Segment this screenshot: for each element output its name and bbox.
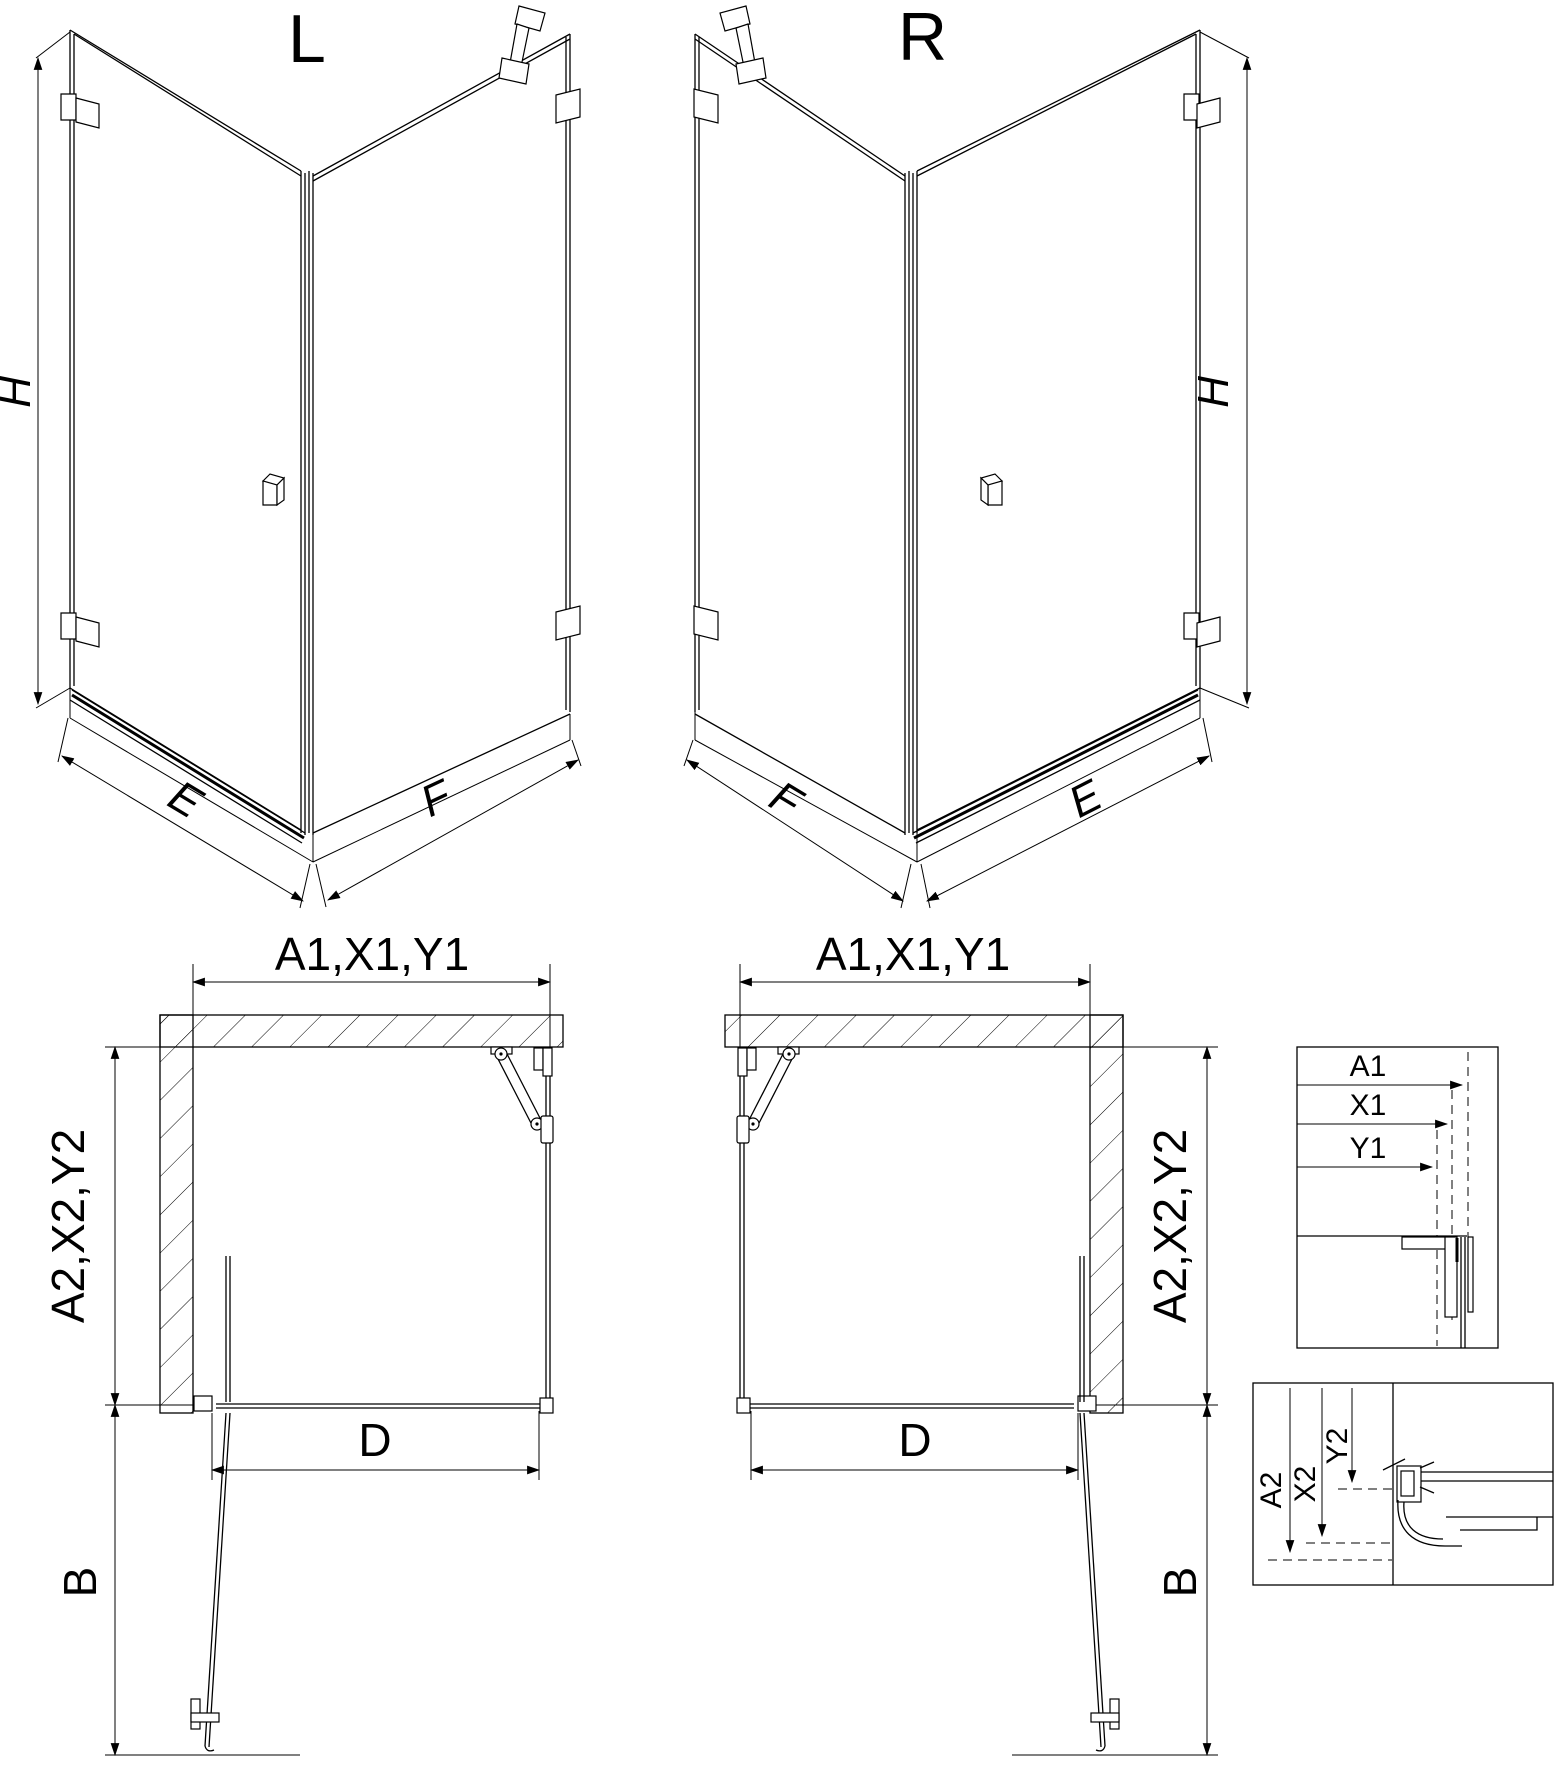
wall-bracket-bottom — [694, 606, 718, 640]
dim-D-group: D — [212, 1411, 539, 1480]
dim-label-A2X2Y2: A2,X2,Y2 — [42, 1129, 94, 1323]
technical-drawing-page: H E F L — [0, 0, 1563, 1769]
dim-label-A2X2Y2: A2,X2,Y2 — [1144, 1129, 1196, 1323]
dim-label-B: B — [1154, 1567, 1206, 1598]
shower-tray-edge — [70, 688, 570, 862]
dim-label-F: F — [413, 770, 460, 827]
wall-left — [160, 1015, 193, 1413]
fixed-panel-plan — [738, 1047, 756, 1402]
shower-enclosure-diagram: H E F L — [0, 0, 1563, 1769]
detail-label-Y1: Y1 — [1350, 1132, 1387, 1165]
variant-label-L: L — [288, 1, 326, 77]
corner-profile — [301, 171, 313, 835]
threshold-plan — [194, 1396, 553, 1413]
dim-H-left: H — [0, 32, 70, 708]
dim-label-B: B — [54, 1567, 106, 1598]
dim-H-right: H — [1189, 32, 1249, 708]
detail-box-width: A1 X1 Y1 — [1297, 1047, 1498, 1348]
open-door-plan — [191, 1413, 230, 1751]
door-hinge-top — [1184, 94, 1220, 128]
fixed-panel-glass — [313, 34, 570, 833]
variant-label-R: R — [898, 0, 947, 75]
detail-dim-X1: X1 — [1297, 1089, 1452, 1320]
detail-dim-X2: X2 — [1289, 1388, 1392, 1543]
plan-view-left: A1,X1,Y1 — [42, 928, 563, 1755]
tray-section-profile — [1383, 1459, 1553, 1546]
detail-label-X2: X2 — [1289, 1466, 1322, 1503]
dim-label-D: D — [898, 1414, 931, 1466]
door-profile-line — [1080, 1256, 1084, 1402]
detail-label-A1: A1 — [1350, 1050, 1387, 1083]
dim-label-A1X1Y1: A1,X1,Y1 — [275, 928, 469, 980]
detail-label-Y2: Y2 — [1321, 1428, 1354, 1465]
door-handle-plan — [1091, 1713, 1119, 1722]
detail-box-depth: A2 X2 Y2 — [1253, 1383, 1553, 1585]
dim-label-H: H — [0, 376, 40, 408]
wall-bracket-top — [694, 89, 718, 123]
door-profile-line — [226, 1256, 230, 1402]
door-handle-knob — [981, 474, 1002, 505]
door-handle-knob — [263, 474, 284, 505]
dim-F-right: F — [684, 740, 911, 908]
wall-right — [1090, 1015, 1123, 1413]
door-handle-plan — [191, 1713, 219, 1722]
support-bar — [720, 6, 766, 84]
dim-label-D: D — [358, 1414, 391, 1466]
fixed-panel-glass — [695, 34, 905, 833]
dim-D-group: D — [751, 1411, 1078, 1480]
wall-bracket-bottom — [556, 606, 580, 640]
plan-view-right: A1,X1,Y1 — [725, 928, 1218, 1755]
support-bar — [499, 6, 545, 84]
iso-view-left: H E F L — [0, 1, 581, 908]
wall-bracket-top — [556, 89, 580, 123]
wall-top — [725, 1015, 1123, 1047]
dim-F-left: F — [316, 740, 581, 907]
corner-profile — [905, 171, 917, 835]
dim-label-H: H — [1189, 376, 1238, 408]
wall-top — [160, 1015, 563, 1047]
detail-label-A2: A2 — [1255, 1472, 1288, 1509]
dim-B-group: B — [54, 1405, 300, 1755]
door-hinge-top — [61, 94, 99, 128]
detail-label-X1: X1 — [1350, 1089, 1387, 1122]
dim-label-E: E — [1061, 770, 1110, 827]
dim-label-A1X1Y1: A1,X1,Y1 — [816, 928, 1010, 980]
shower-tray-edge — [695, 688, 1200, 862]
threshold-rail — [913, 690, 1200, 843]
threshold-plan — [737, 1396, 1096, 1413]
open-door-plan — [1080, 1413, 1119, 1751]
iso-view-right: H F E R — [684, 0, 1249, 908]
detail-dim-A2: A2 — [1255, 1388, 1392, 1560]
door-hinge-bottom — [1184, 613, 1220, 647]
door-hinge-bottom — [61, 613, 99, 647]
detail-dim-Y2: Y2 — [1321, 1388, 1404, 1489]
fixed-panel-plan — [534, 1047, 552, 1402]
